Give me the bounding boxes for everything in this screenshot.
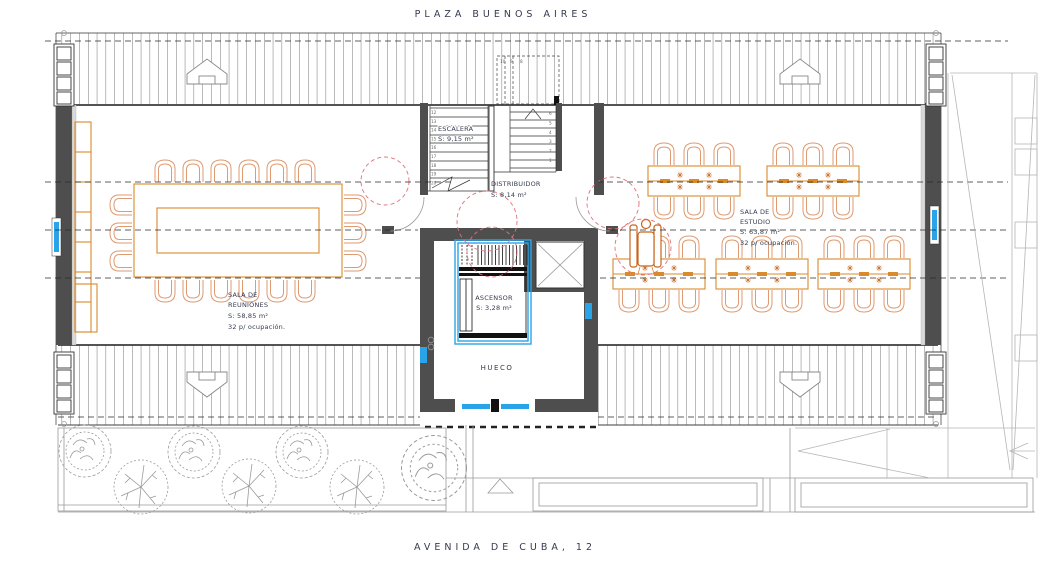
tree-icon — [330, 460, 384, 514]
street-name-top: PLAZA BUENOS AIRES — [415, 9, 592, 20]
wall-vent-blue-left — [420, 347, 427, 363]
facade-panel-top-left — [54, 44, 74, 106]
svg-text:15: 15 — [431, 136, 437, 141]
svg-text:16: 16 — [431, 145, 437, 150]
floor-plan-drawing: 121314151617181920 654321 1098 — [0, 0, 1053, 565]
svg-text:2: 2 — [549, 149, 552, 154]
door-leaf-blue-right — [501, 404, 529, 409]
door-leaf-blue-left — [462, 404, 490, 409]
svg-text:6: 6 — [549, 111, 552, 116]
stair-step-numbers-left: 121314151617181920 — [431, 110, 437, 185]
room-name: ESCALERA — [438, 125, 474, 133]
stair-flight-left — [428, 106, 494, 191]
window-left — [52, 218, 61, 256]
conference-table — [134, 184, 342, 277]
tree-icon — [402, 436, 467, 501]
room-name: DISTRIBUIDOR — [491, 180, 541, 188]
svg-text:18: 18 — [431, 163, 437, 168]
room-area: S: 58,85 m² — [228, 312, 268, 320]
svg-text:5: 5 — [549, 120, 552, 125]
tree-icon — [59, 425, 111, 477]
stair-flight-right — [494, 106, 556, 172]
sidewalk-center — [58, 425, 1035, 512]
tree-icon — [168, 426, 220, 478]
svg-text:4: 4 — [549, 130, 552, 135]
floor-plan-page: 121314151617181920 654321 1098 — [0, 0, 1053, 565]
label-ascensor: ASCENSOR S: 3,28 m² — [475, 294, 513, 312]
planters — [533, 428, 1033, 512]
tree-icon — [276, 426, 328, 478]
label-sala-reuniones: SALA DE REUNIONES S: 58,85 m² 32 p/ ocup… — [228, 291, 285, 331]
svg-text:12: 12 — [431, 110, 437, 115]
study-desk — [648, 143, 740, 219]
window-right — [930, 206, 939, 244]
elevator-car — [455, 240, 531, 344]
svg-text:9: 9 — [510, 59, 513, 64]
room-occupancy: 32 p/ ocupación. — [740, 239, 797, 247]
room-area: S: 63,87 m² — [740, 228, 780, 236]
facade-panel-bottom-left — [54, 352, 74, 414]
wall-cabinet — [75, 122, 97, 332]
roof-band-top — [45, 33, 1008, 105]
label-distribuidor: DISTRIBUIDOR S: 8,14 m² — [491, 180, 541, 199]
wheelchair-icon — [630, 220, 661, 275]
room-name: SALA DE — [228, 291, 258, 299]
svg-text:20: 20 — [431, 180, 437, 185]
shaft-cross — [536, 242, 584, 288]
wall-vent-blue-right — [585, 303, 592, 319]
study-desk — [818, 236, 910, 312]
label-sala-estudio: SALA DE ESTUDIO S: 63,87 m² 32 p/ ocupac… — [740, 208, 797, 247]
label-escalera: ESCALERA S: 9,15 m² — [438, 125, 474, 143]
stair-step-numbers-right: 654321 — [549, 111, 552, 163]
study-desk — [767, 143, 859, 219]
ramp-bottom-right — [795, 428, 1035, 478]
room-area: S: 3,28 m² — [476, 304, 512, 312]
svg-text:17: 17 — [431, 154, 437, 159]
stair-step-numbers-upper: 1098 — [500, 59, 523, 64]
room-name: REUNIONES — [228, 301, 268, 309]
svg-text:1: 1 — [549, 158, 552, 163]
room-area: S: 8,14 m² — [491, 191, 527, 199]
conference-chairs — [110, 160, 366, 302]
roof-band-bottom-left — [58, 345, 420, 425]
room-name: ESTUDIO — [740, 218, 770, 226]
svg-text:13: 13 — [431, 119, 437, 124]
room-area: S: 9,15 m² — [438, 135, 474, 143]
svg-text:10: 10 — [500, 59, 506, 64]
door-swing-left — [390, 197, 424, 231]
meeting-room-furniture — [75, 122, 366, 332]
svg-text:19: 19 — [431, 172, 437, 177]
tree-icon — [114, 460, 168, 514]
room-name: ASCENSOR — [475, 294, 513, 302]
stair-center-wall — [489, 106, 494, 191]
door-swing-right — [576, 197, 610, 231]
room-name: SALA DE — [740, 208, 770, 216]
facade-panel-top-right — [926, 44, 946, 106]
room-occupancy: 32 p/ ocupación. — [228, 323, 285, 331]
roof-band-bottom-right — [598, 345, 938, 425]
label-hueco: HUECO — [481, 364, 514, 372]
facade-panel-bottom-right — [926, 352, 946, 414]
svg-text:8: 8 — [520, 59, 523, 64]
svg-text:14: 14 — [431, 128, 437, 133]
svg-text:3: 3 — [549, 139, 552, 144]
street-name-bottom: AVENIDA DE CUBA, 12 — [414, 542, 596, 553]
study-desk — [716, 236, 808, 312]
